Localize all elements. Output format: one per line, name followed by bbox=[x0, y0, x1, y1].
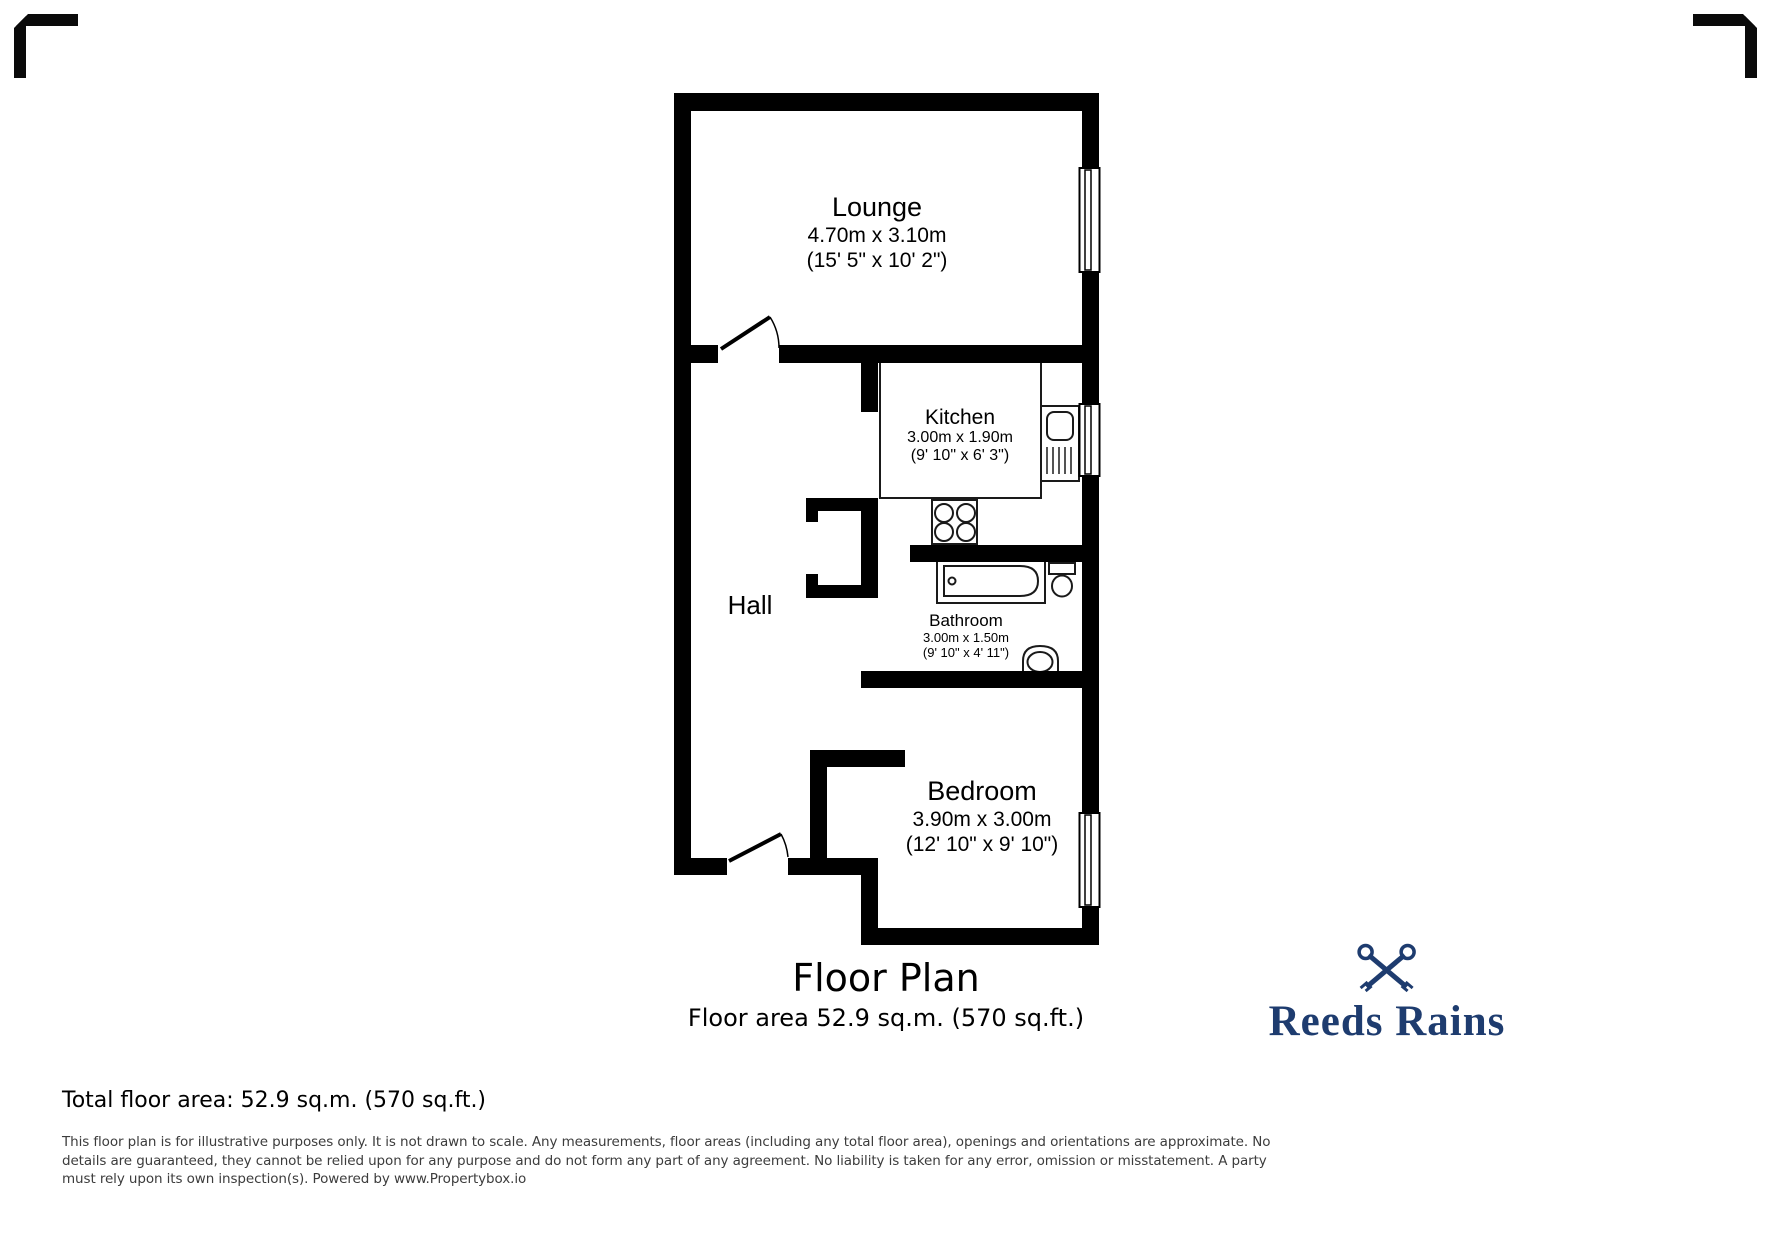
bath-fixture bbox=[937, 559, 1045, 603]
wall-segment bbox=[1082, 272, 1099, 404]
hob-ring bbox=[957, 523, 975, 541]
room-dims-imperial: (9' 10" x 6' 3") bbox=[907, 447, 1013, 465]
door-arc bbox=[781, 834, 788, 857]
lounge-door-swing bbox=[721, 317, 779, 349]
corner-mark-top-left bbox=[14, 14, 78, 78]
wall-segment bbox=[861, 498, 878, 598]
entrance-door-swing bbox=[729, 834, 788, 861]
wall-segment bbox=[861, 671, 1099, 688]
disclaimer-line: This floor plan is for illustrative purp… bbox=[62, 1133, 1270, 1152]
title-block: Floor Plan Floor area 52.9 sq.m. (570 sq… bbox=[688, 955, 1084, 1035]
brand-name: Reeds Rains bbox=[1269, 999, 1506, 1045]
wall-segment bbox=[674, 93, 1099, 111]
wall-segment bbox=[861, 928, 1099, 945]
disclaimer-line: details are guaranteed, they cannot be r… bbox=[62, 1152, 1270, 1171]
toilet-fixture bbox=[1049, 563, 1075, 597]
key-bow bbox=[1402, 946, 1415, 959]
room-name: Hall bbox=[728, 590, 773, 621]
wall-segment bbox=[806, 498, 818, 522]
room-name: Lounge bbox=[807, 192, 948, 223]
room-name: Bathroom bbox=[923, 611, 1009, 630]
room-dims-metric: 3.00m x 1.90m bbox=[907, 429, 1013, 447]
room-dims-imperial: (12' 10" x 9' 10") bbox=[906, 832, 1059, 857]
hob-ring bbox=[957, 504, 975, 522]
room-dims-imperial: (9' 10" x 4' 11") bbox=[923, 645, 1009, 660]
bathroom-label: Bathroom 3.00m x 1.50m (9' 10" x 4' 11") bbox=[923, 611, 1009, 660]
toilet-bowl bbox=[1052, 576, 1072, 597]
toilet-cistern bbox=[1049, 563, 1075, 574]
wall-segment bbox=[779, 345, 1099, 363]
corner-mark-bar bbox=[14, 16, 26, 78]
room-dims-metric: 3.90m x 3.00m bbox=[906, 807, 1059, 832]
door-leaf bbox=[729, 834, 781, 861]
wall-segment bbox=[674, 93, 691, 875]
hob-ring bbox=[935, 523, 953, 541]
wall-segment bbox=[674, 858, 727, 875]
window-pane bbox=[1085, 170, 1091, 270]
wall-segment bbox=[1082, 93, 1099, 168]
floorplan-page: { "colors": { "wall": "#000000", "logo_n… bbox=[0, 0, 1771, 1239]
door-leaf bbox=[721, 317, 770, 349]
hob-ring bbox=[935, 504, 953, 522]
window-pane bbox=[1085, 815, 1091, 905]
door-symbols bbox=[721, 317, 788, 861]
key-bow bbox=[1360, 946, 1373, 959]
floor-plan-drawing bbox=[0, 0, 1771, 1239]
brand-logo: Reeds Rains bbox=[1269, 942, 1506, 1045]
room-dims-metric: 4.70m x 3.10m bbox=[807, 223, 948, 248]
hob-fixture bbox=[932, 500, 977, 544]
page-title: Floor Plan bbox=[688, 955, 1084, 1001]
sink-drainer-unit-fixture bbox=[1041, 406, 1079, 481]
wall-segment bbox=[1082, 476, 1099, 813]
bedroom-window bbox=[1080, 813, 1100, 907]
total-floor-area: Total floor area: 52.9 sq.m. (570 sq.ft.… bbox=[62, 1088, 486, 1113]
hall-label: Hall bbox=[728, 590, 773, 621]
lounge-window bbox=[1080, 168, 1100, 272]
room-name: Bedroom bbox=[906, 776, 1059, 807]
wall-segment bbox=[806, 574, 818, 598]
wall-segment bbox=[861, 363, 878, 412]
crossed-keys-icon bbox=[1353, 942, 1421, 994]
kitchen-label: Kitchen 3.00m x 1.90m (9' 10" x 6' 3") bbox=[907, 406, 1013, 465]
corner-mark-bar bbox=[1745, 16, 1757, 78]
basin-bowl bbox=[1028, 652, 1053, 672]
disclaimer-line: must rely upon its own inspection(s). Po… bbox=[62, 1170, 1270, 1189]
room-name: Kitchen bbox=[907, 406, 1013, 429]
disclaimer-text: This floor plan is for illustrative purp… bbox=[62, 1133, 1270, 1189]
sink-bowl bbox=[1047, 412, 1073, 440]
wall-segment bbox=[674, 345, 718, 363]
bath-tub bbox=[944, 566, 1038, 596]
door-arc bbox=[770, 317, 779, 348]
room-dims-metric: 3.00m x 1.50m bbox=[923, 630, 1009, 645]
corner-mark-top-right bbox=[1693, 14, 1757, 78]
bedroom-label: Bedroom 3.90m x 3.00m (12' 10" x 9' 10") bbox=[906, 776, 1059, 857]
wall-segment bbox=[810, 750, 827, 875]
room-dims-imperial: (15' 5" x 10' 2") bbox=[807, 248, 948, 273]
kitchen-window bbox=[1080, 404, 1100, 476]
wall-segment bbox=[910, 545, 1099, 562]
window-pane bbox=[1085, 406, 1091, 474]
lounge-label: Lounge 4.70m x 3.10m (15' 5" x 10' 2") bbox=[807, 192, 948, 273]
floor-area-subtitle: Floor area 52.9 sq.m. (570 sq.ft.) bbox=[688, 1001, 1084, 1035]
